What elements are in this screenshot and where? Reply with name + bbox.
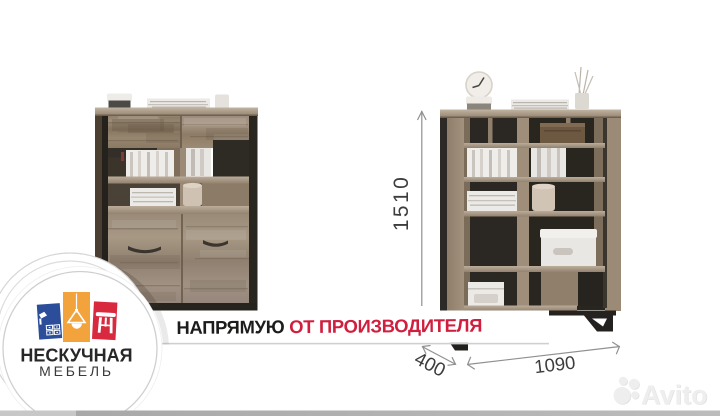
svg-text:Avito: Avito (641, 380, 708, 410)
svg-text:1510: 1510 (390, 175, 413, 231)
svg-text:МЕБЕЛЬ: МЕБЕЛЬ (39, 363, 114, 379)
svg-text:НАПРЯМУЮ ОТ ПРОИЗВОДИТЕЛЯ: НАПРЯМУЮ ОТ ПРОИЗВОДИТЕЛЯ (176, 315, 482, 338)
